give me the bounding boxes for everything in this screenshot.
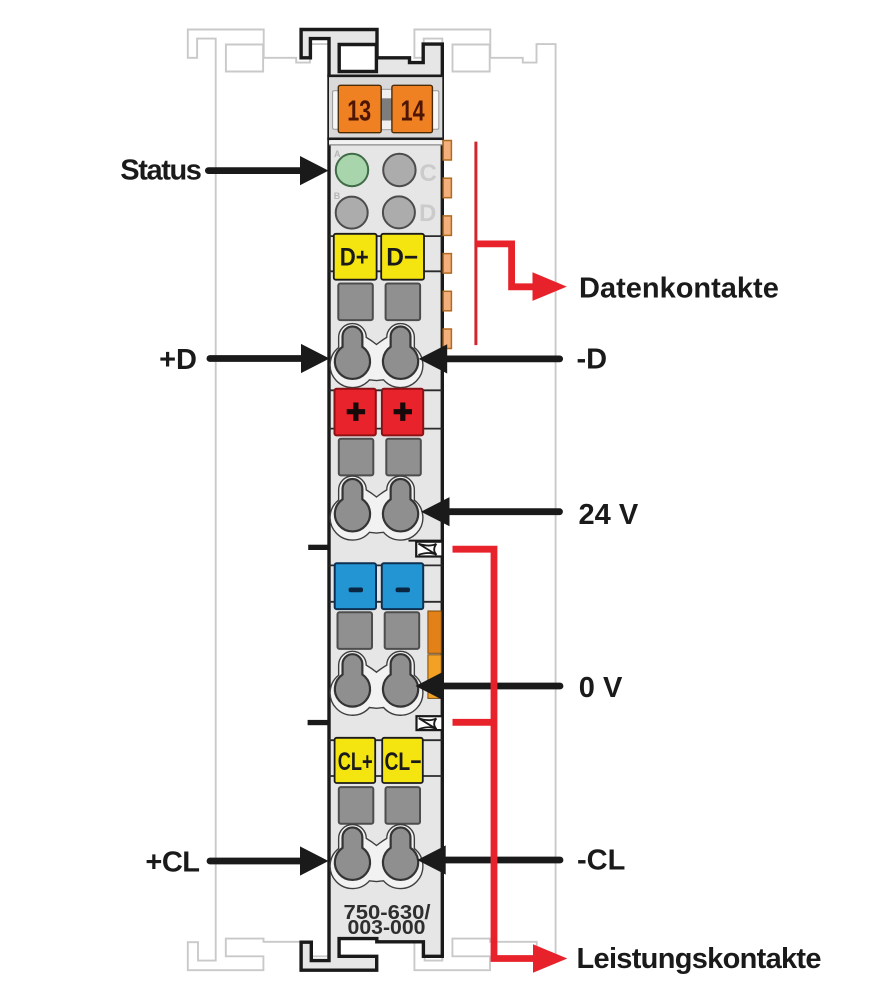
- svg-text:0 V: 0 V: [579, 672, 623, 704]
- svg-text:CL+: CL+: [338, 748, 373, 776]
- svg-text:C: C: [420, 160, 437, 187]
- svg-text:-CL: -CL: [577, 845, 625, 877]
- svg-text:Datenkontakte: Datenkontakte: [579, 273, 779, 305]
- svg-text:003-000: 003-000: [348, 917, 426, 939]
- svg-text:D−: D−: [386, 243, 418, 271]
- svg-text:D: D: [419, 200, 436, 227]
- svg-text:-D: -D: [577, 344, 608, 376]
- svg-text:+D: +D: [159, 344, 197, 376]
- svg-text:A: A: [334, 149, 341, 159]
- svg-text:D+: D+: [340, 243, 369, 271]
- svg-text:CL−: CL−: [385, 748, 422, 776]
- svg-text:Leistungskontakte: Leistungskontakte: [577, 943, 822, 975]
- svg-text:13: 13: [347, 96, 371, 128]
- svg-text:B: B: [334, 191, 341, 201]
- svg-text:Status: Status: [120, 155, 201, 187]
- svg-text:14: 14: [401, 96, 425, 128]
- svg-text:24 V: 24 V: [579, 499, 639, 531]
- svg-text:+CL: +CL: [145, 847, 199, 879]
